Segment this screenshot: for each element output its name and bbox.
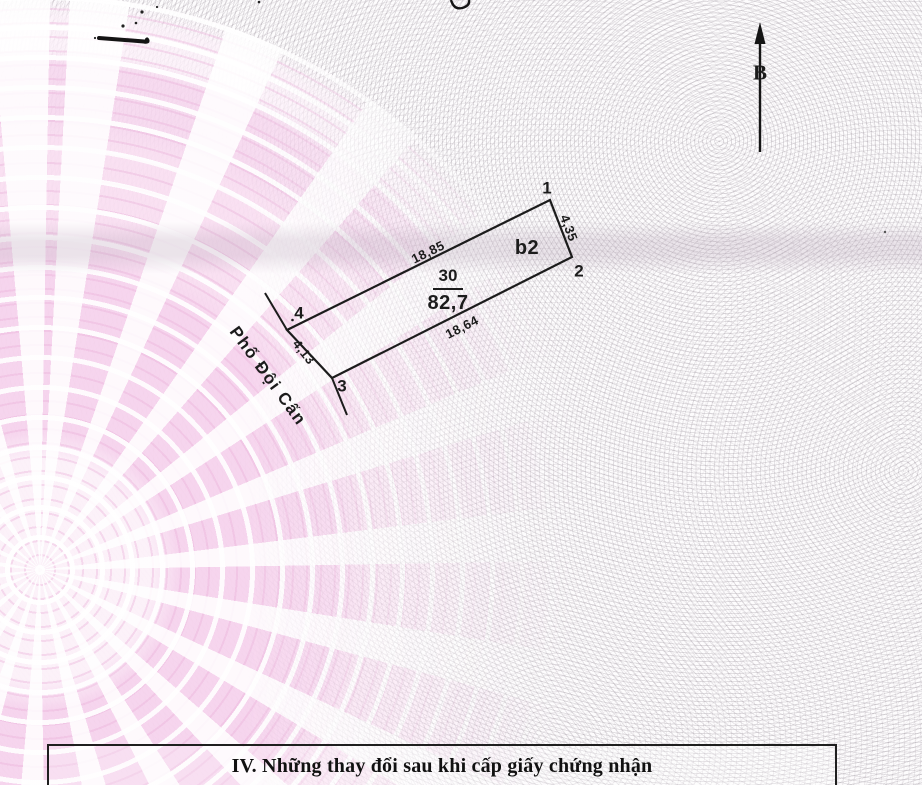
ink-speck [121, 24, 124, 27]
vertex-label-3: 3 [337, 378, 346, 395]
ink-speck [258, 1, 261, 4]
cadastral-linework [0, 0, 922, 785]
vertex-label-4: 4 [294, 305, 303, 322]
block-label: b2 [515, 238, 539, 258]
ink-speck [94, 37, 96, 39]
plot-area: 82,7 [416, 292, 480, 315]
ink-speck [156, 6, 158, 8]
footer-section-title: IV. Những thay đổi sau khi cấp giấy chứn… [49, 755, 835, 778]
street-line-upper-extension [265, 293, 287, 330]
vertex-label-1: 1 [542, 180, 551, 197]
plot-number: 30 [433, 266, 464, 290]
plot-id-group: 30 82,7 [416, 266, 480, 315]
stray-pen-dash [99, 38, 148, 42]
ink-speck [140, 10, 143, 13]
clipped-glyph-top-edge [451, 0, 469, 8]
vertex-label-2: 2 [574, 263, 583, 280]
certificate-page: 1 2 3 4 18,85 4,35 18,64 4,13 30 82,7 b2… [0, 0, 922, 785]
ink-speck [135, 22, 138, 25]
footer-section-bar: IV. Những thay đổi sau khi cấp giấy chứn… [47, 744, 837, 785]
ink-speck [884, 231, 886, 233]
north-arrow-head-icon [755, 22, 766, 44]
north-label: B [753, 63, 767, 84]
